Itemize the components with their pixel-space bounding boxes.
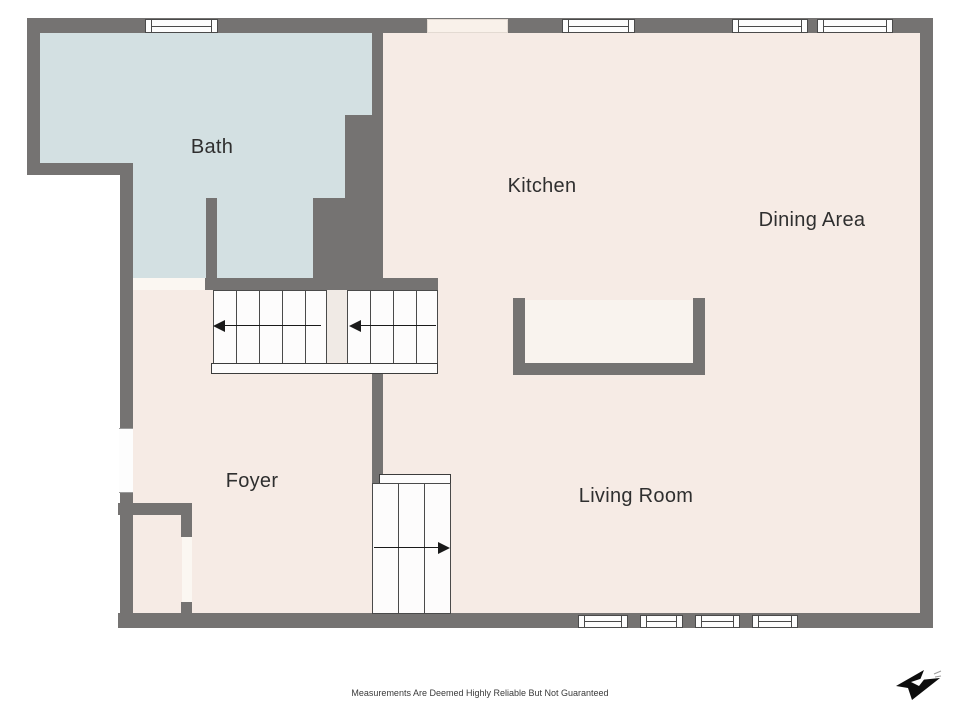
bath-floor	[133, 163, 345, 198]
window-bath	[145, 19, 218, 33]
kitchen-counter-bottom	[513, 363, 705, 375]
floor-plan: Bath Kitchen Dining Area Foyer Living Ro…	[0, 0, 960, 720]
window-living-4	[752, 615, 798, 628]
wall-left-lower	[120, 175, 133, 628]
window-living-2	[640, 615, 683, 628]
stairs-upper-landing-rail	[211, 363, 438, 374]
wall-bath-stair-block	[313, 198, 383, 290]
wall-left-jog	[27, 163, 133, 175]
compass-icon	[890, 666, 946, 704]
stair-arrow-shaft	[374, 547, 440, 548]
stair-arrow-right-icon	[374, 542, 450, 554]
window-dining-2	[817, 19, 893, 33]
room-label-living: Living Room	[566, 485, 706, 508]
wall-closet-top	[118, 503, 192, 515]
wall-bath-kitchen-jut	[345, 115, 383, 198]
stair-arrow-shaft	[359, 325, 436, 326]
kitchen-counter-right	[693, 298, 705, 375]
wall-bottom	[118, 613, 933, 628]
stair-arrow-head-right-icon	[438, 542, 450, 554]
kitchen-counter-interior	[525, 300, 693, 363]
wall-closet-jamb-upper	[181, 515, 192, 537]
wall-corridor-top	[205, 278, 438, 290]
window-foyer	[119, 428, 133, 493]
room-label-foyer: Foyer	[192, 470, 312, 493]
bath-floor	[133, 198, 313, 278]
wall-bath-kitchen	[372, 33, 383, 115]
wall-mid-vertical	[372, 374, 383, 483]
disclaimer-text: Measurements Are Deemed Highly Reliable …	[240, 688, 720, 698]
wall-closet-jamb-lower	[181, 602, 192, 613]
room-label-bath: Bath	[152, 136, 272, 159]
window-dining-1	[732, 19, 808, 33]
stair-arrow-left-icon	[213, 320, 323, 332]
window-kitchen	[562, 19, 635, 33]
bath-door-opening	[133, 278, 205, 290]
stair-arrow-head-left-icon	[349, 320, 361, 332]
wall-opening-top	[427, 19, 508, 33]
room-label-dining: Dining Area	[742, 209, 882, 232]
stair-arrow-head-left-icon	[213, 320, 225, 332]
window-living-1	[578, 615, 628, 628]
wall-left-upper	[27, 18, 40, 175]
closet-door-opening	[182, 537, 192, 602]
wall-right	[920, 18, 933, 628]
wall-bath-stub	[206, 198, 217, 290]
stair-arrow-left-icon	[349, 320, 436, 332]
room-label-kitchen: Kitchen	[482, 175, 602, 198]
window-living-3	[695, 615, 740, 628]
stairs-upper-divider	[326, 290, 348, 362]
stair-arrow-shaft	[223, 325, 321, 326]
bath-floor	[40, 33, 372, 115]
